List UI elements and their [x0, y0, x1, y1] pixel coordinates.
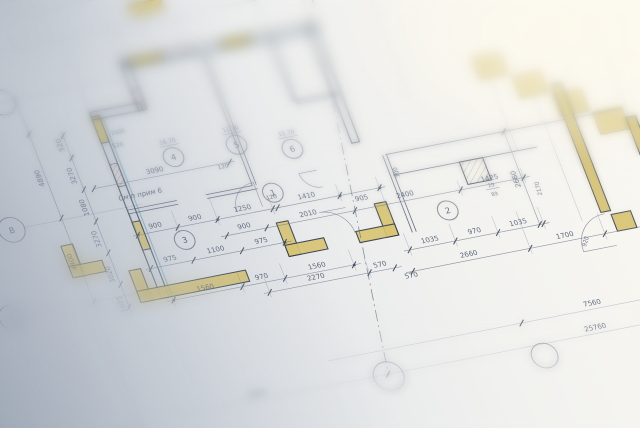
dim-label: 700 — [392, 166, 402, 178]
room-number: 2 — [443, 205, 452, 215]
note-text: См п прим 6 — [117, 187, 164, 203]
dim-label: 900 — [147, 221, 163, 231]
dim-label: 4890 — [33, 169, 47, 187]
dim-label: 3270 — [90, 230, 104, 248]
dim-label: 3090 — [145, 165, 165, 176]
axis-letter-b: Б — [8, 313, 17, 324]
dim-label: 2660 — [509, 170, 523, 188]
dim-label: 6432 — [248, 388, 268, 399]
dim-label: 1100 — [206, 244, 226, 255]
dim-label: 1075 — [115, 295, 129, 313]
opening-mark-bottom: 89 — [491, 191, 500, 198]
dim-label: 900 — [187, 213, 203, 223]
background-grid-lines — [0, 0, 640, 428]
dim-label: 900 — [236, 221, 252, 231]
dim-label: 1035 — [508, 217, 528, 228]
dim-label: 1080 — [77, 199, 91, 217]
axis-letter-v: В — [7, 225, 16, 236]
dim-label: 7560 — [582, 298, 602, 309]
room-number: 6 — [288, 144, 297, 154]
dim-label: 920 — [582, 236, 591, 248]
dim-label: 1410 — [296, 191, 316, 202]
dim-label: 3270 — [65, 167, 79, 185]
dim-label: 570 — [403, 271, 419, 281]
room-area-label: 11.70 — [222, 125, 241, 134]
node-dots — [74, 25, 407, 304]
blurred-wall-highlights — [124, 0, 630, 212]
walls — [0, 0, 640, 347]
bearing-wall-bay — [276, 202, 399, 257]
dim-label: 905 — [354, 193, 370, 203]
dim-label: 2170 — [534, 181, 544, 196]
dim-label: 1000 — [110, 129, 127, 137]
dim-label: 1700 — [555, 230, 575, 241]
axis-bubble-bottom-1 — [369, 359, 409, 393]
dim-label: 1035 — [420, 235, 440, 246]
door-swing-arcs — [228, 121, 617, 312]
dim-label: 970 — [467, 226, 483, 236]
bearing-wall-L2 — [129, 250, 250, 303]
axis-bubble-bottom-2 — [527, 341, 562, 370]
dim-label: 2010 — [298, 208, 318, 219]
room-number: 4 — [169, 152, 178, 162]
dim-label: 970 — [254, 272, 270, 282]
floor-plan-svg: В Б 4 16.70 5 11.70 6 15.70 — [0, 0, 640, 428]
dim-label: 1560 — [307, 261, 327, 272]
dim-label: 975 — [162, 254, 178, 264]
floor-plan-drawing: В Б 4 16.70 5 11.70 6 15.70 — [0, 0, 640, 428]
room-number: 3 — [180, 235, 189, 245]
dim-label: 2660 — [459, 249, 479, 260]
blueprint-photo: В Б 4 16.70 5 11.70 6 15.70 — [0, 0, 640, 428]
room-area-label: 16.70 — [159, 138, 178, 147]
dim-label: 2400 — [395, 189, 415, 200]
dim-label: 3020 — [103, 265, 117, 283]
dim-label: 975 — [253, 236, 269, 246]
room-area-label: 15.70 — [278, 129, 297, 138]
dim-label: 520 — [112, 142, 125, 150]
dim-label: 570 — [372, 260, 388, 270]
